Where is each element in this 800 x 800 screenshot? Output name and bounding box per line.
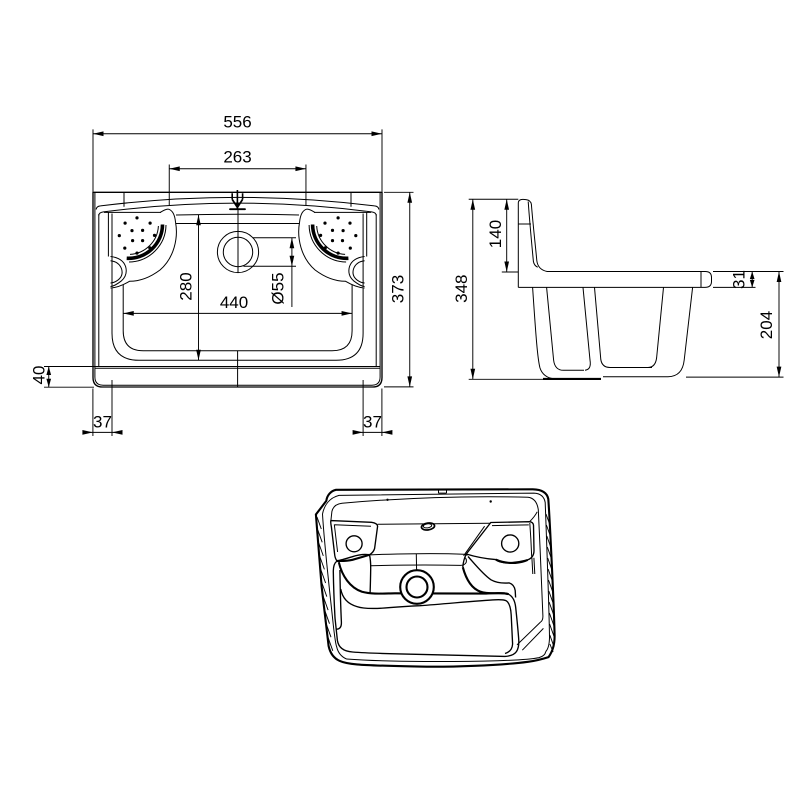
svg-text:280: 280	[177, 272, 196, 300]
svg-text:40: 40	[30, 366, 49, 385]
svg-text:348: 348	[452, 275, 471, 303]
svg-text:204: 204	[757, 311, 776, 339]
svg-text:31: 31	[729, 270, 748, 289]
svg-text:373: 373	[389, 275, 408, 303]
svg-text:37: 37	[363, 413, 382, 432]
svg-text:263: 263	[223, 148, 251, 167]
svg-text:140: 140	[486, 220, 505, 248]
svg-text:556: 556	[223, 113, 251, 132]
svg-text:440: 440	[220, 293, 248, 312]
svg-text:Ø55: Ø55	[269, 272, 288, 304]
svg-text:37: 37	[93, 413, 112, 432]
